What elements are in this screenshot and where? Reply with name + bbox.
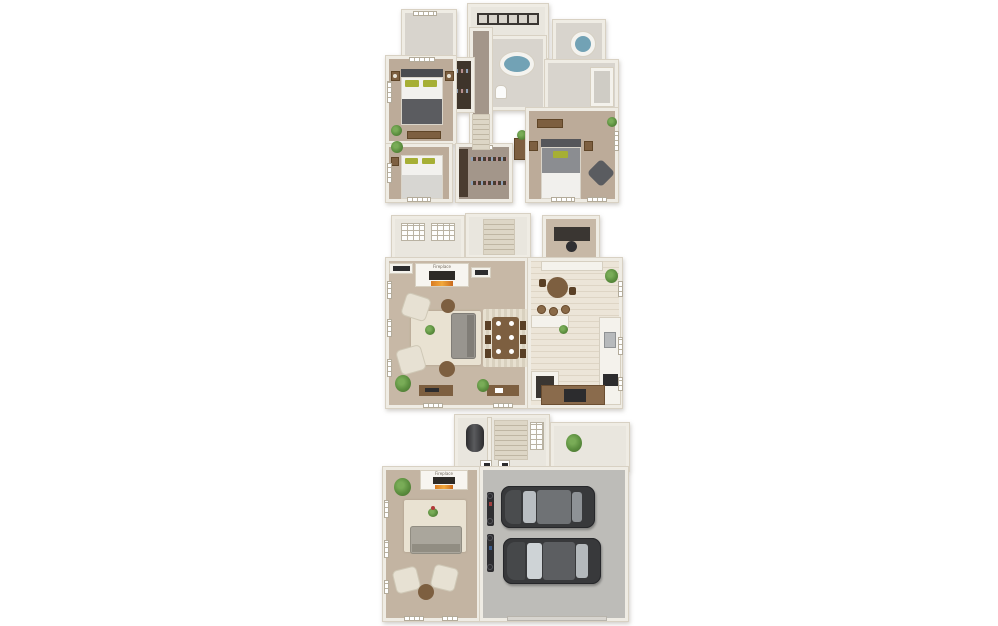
plant-icon [394, 478, 411, 496]
window-icon [618, 377, 623, 391]
window-icon [423, 403, 443, 408]
wardrobe [459, 149, 468, 197]
dining-chair [485, 335, 491, 344]
console-table [419, 385, 453, 396]
water-heater [466, 424, 484, 452]
car-rear-window [572, 492, 582, 522]
hanging-clothes [471, 157, 507, 161]
fireplace-screen [429, 271, 455, 280]
sofa-back [467, 315, 474, 357]
desk-nook [543, 216, 599, 260]
ground-floor-plan: Fireplace [383, 415, 631, 623]
bedroom-2 [386, 144, 452, 202]
entry-hall [455, 415, 549, 471]
main-floor-plan: Fireplace [386, 214, 622, 410]
armchair [391, 565, 421, 594]
round-side-table [439, 361, 455, 377]
pillow [553, 151, 568, 158]
accent-chair [587, 159, 615, 187]
dining-chair [520, 335, 526, 344]
plant-icon [566, 434, 582, 452]
plant-icon [559, 325, 568, 334]
sofa [410, 526, 462, 554]
car-windshield [527, 543, 542, 579]
window-icon [387, 319, 392, 337]
car-roof [543, 542, 575, 580]
bar-stool [549, 307, 558, 316]
car-roof [537, 490, 571, 524]
bed-blanket [402, 99, 442, 124]
headboard [401, 69, 443, 77]
nightstand [584, 141, 593, 151]
hanging-clothes [456, 69, 470, 73]
window-icon [618, 337, 623, 355]
family-room: Fireplace [383, 467, 480, 621]
window-icon [387, 81, 392, 103]
staircase [472, 114, 490, 150]
plant-icon [425, 325, 435, 335]
plant-icon [605, 269, 618, 283]
armchair [429, 563, 459, 592]
media-console [389, 263, 413, 274]
pillow [405, 158, 418, 164]
nightstand [391, 71, 400, 81]
washer-dryer-icon [479, 15, 537, 23]
sofa-back [412, 544, 460, 552]
breakfast-counter [541, 261, 603, 271]
bed-sheet [542, 173, 580, 198]
bar-stool [537, 305, 546, 314]
window-icon [387, 163, 392, 183]
round-side-table [441, 299, 455, 313]
kitchen [528, 258, 622, 408]
dining-chair [485, 349, 491, 358]
plant-icon [395, 375, 411, 392]
porch [551, 423, 629, 471]
fireplace-screen [433, 477, 455, 484]
tub-water [575, 36, 591, 52]
tub-water [504, 56, 530, 72]
plant-icon [391, 141, 403, 153]
car-hood [507, 542, 525, 580]
fireplace-fire [435, 485, 453, 489]
media-console [471, 267, 491, 278]
dining-chair [485, 321, 491, 330]
nightstand [529, 141, 538, 151]
range-icon [564, 389, 586, 402]
dining-chair [520, 349, 526, 358]
pillow [405, 80, 419, 87]
pillow [422, 158, 435, 164]
shower-floor [594, 71, 610, 103]
two-car-garage [480, 467, 628, 621]
nightstand [391, 157, 399, 166]
desk [554, 227, 590, 241]
window-icon [431, 223, 455, 241]
office-chair [566, 241, 577, 252]
window-icon [409, 57, 435, 62]
master-bedroom [386, 56, 456, 144]
fireplace: Fireplace [420, 470, 468, 490]
car [501, 486, 595, 528]
dining-table [492, 317, 519, 359]
chair [569, 287, 576, 295]
bar-stool [561, 305, 570, 314]
dining-chair [520, 321, 526, 330]
hanging-closet [456, 144, 512, 202]
hanging-clothes [471, 181, 507, 185]
window-icon [442, 616, 458, 621]
kitchen-sink [604, 332, 616, 348]
window-icon [384, 540, 389, 558]
breakfast-table [547, 277, 568, 298]
dresser [407, 131, 441, 139]
hanging-clothes [456, 89, 470, 93]
car-windshield [523, 491, 536, 523]
wall [488, 418, 491, 462]
window-icon [384, 580, 389, 594]
console-table [487, 385, 519, 396]
plant-icon [477, 379, 489, 392]
car-hood [505, 490, 521, 524]
floorplan-render: Fireplace [0, 0, 998, 626]
bedroom-3 [526, 108, 618, 202]
fireplace-fire [431, 281, 453, 286]
window-icon [387, 359, 392, 377]
window-icon [614, 131, 619, 151]
dishwasher-icon [603, 374, 618, 386]
car [503, 538, 601, 584]
window-icon [530, 422, 544, 450]
staircase [483, 219, 515, 255]
round-side-table [418, 584, 434, 600]
flower-centerpiece [428, 508, 438, 517]
window-icon [387, 281, 392, 299]
toilet-icon [495, 85, 507, 99]
window-icon [401, 223, 425, 241]
linen-room [402, 10, 456, 58]
staircase [494, 420, 528, 460]
chair [539, 279, 546, 287]
fireplace-label: Fireplace [421, 472, 467, 476]
car-rear-window [576, 544, 588, 578]
fireplace-label: Fireplace [416, 265, 468, 269]
sofa [451, 313, 476, 359]
window-icon [404, 616, 424, 621]
plant-icon [391, 125, 402, 136]
living-dining-area: Fireplace [386, 258, 528, 408]
window-icon [384, 500, 389, 518]
pillow [423, 80, 437, 87]
window-icon [551, 197, 575, 202]
stairwell [466, 214, 530, 258]
bathroom-3 [545, 60, 618, 112]
upper-floor-plan [386, 4, 618, 204]
window-icon [618, 281, 623, 297]
bicycle-icon [487, 534, 494, 572]
window-icon [587, 197, 607, 202]
lower-cabinets [541, 385, 605, 405]
balcony [392, 216, 464, 262]
bed-blanket [402, 175, 442, 198]
nightstand [445, 71, 454, 81]
window-icon [493, 403, 513, 408]
bicycle-icon [487, 492, 494, 526]
bench [537, 119, 563, 128]
master-bathroom [488, 36, 546, 110]
window-icon [407, 197, 431, 202]
fireplace: Fireplace [415, 263, 469, 287]
window-icon [413, 11, 437, 16]
plant-icon [607, 117, 617, 127]
garage-door [507, 616, 607, 621]
